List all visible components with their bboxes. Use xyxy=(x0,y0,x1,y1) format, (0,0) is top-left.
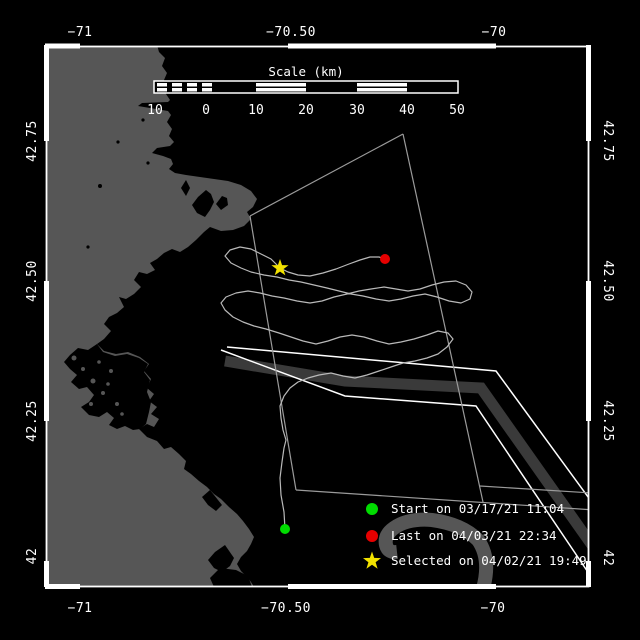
legend-last-dot-icon xyxy=(366,530,378,542)
legend-start-dot-icon xyxy=(366,503,378,515)
lat-label-left-4275: 42.75 xyxy=(25,120,40,162)
lon-label-bottom-7050: −70.50 xyxy=(261,601,311,616)
legend-item-last: Last on 04/03/21 22:34 xyxy=(366,528,557,543)
scale-num-10: 10 xyxy=(248,103,264,118)
legend-selected-label: Selected on 04/02/21 19:49 xyxy=(391,553,587,568)
scale-num-m10: 10 xyxy=(147,103,163,118)
lat-label-left-4225: 42.25 xyxy=(25,400,40,442)
start-marker-dot xyxy=(280,524,290,534)
scale-num-20: 20 xyxy=(298,103,314,118)
lat-label-left-4250: 42.50 xyxy=(25,260,40,302)
lat-label-right-4250: 42.50 xyxy=(600,260,615,302)
scale-num-30: 30 xyxy=(349,103,365,118)
lat-label-right-42: 42 xyxy=(600,550,615,567)
legend: Start on 03/17/21 11:04 Last on 04/03/21… xyxy=(363,501,587,569)
scale-bar-title: Scale (km) xyxy=(268,64,343,79)
legend-item-selected: Selected on 04/02/21 19:49 xyxy=(363,552,587,569)
last-marker-dot xyxy=(380,254,390,264)
lon-label-bottom-70: −70 xyxy=(481,601,506,616)
lat-label-right-4275: 42.75 xyxy=(600,120,615,162)
lon-label-top-71: −71 xyxy=(68,25,93,40)
lon-label-top-7050: −70.50 xyxy=(266,25,316,40)
legend-item-start: Start on 03/17/21 11:04 xyxy=(366,501,564,516)
scale-num-40: 40 xyxy=(399,103,415,118)
scale-num-50: 50 xyxy=(449,103,465,118)
legend-last-label: Last on 04/03/21 22:34 xyxy=(391,528,557,543)
lat-label-left-42: 42 xyxy=(25,548,40,565)
legend-start-label: Start on 03/17/21 11:04 xyxy=(391,501,564,516)
lon-label-bottom-71: −71 xyxy=(68,601,93,616)
lon-label-top-70: −70 xyxy=(482,25,507,40)
scale-num-0: 0 xyxy=(202,103,210,118)
lat-label-right-4225: 42.25 xyxy=(600,400,615,442)
map-figure: −71 −70.50 −70 −71 −70.50 −70 42.75 42.5… xyxy=(0,0,640,640)
